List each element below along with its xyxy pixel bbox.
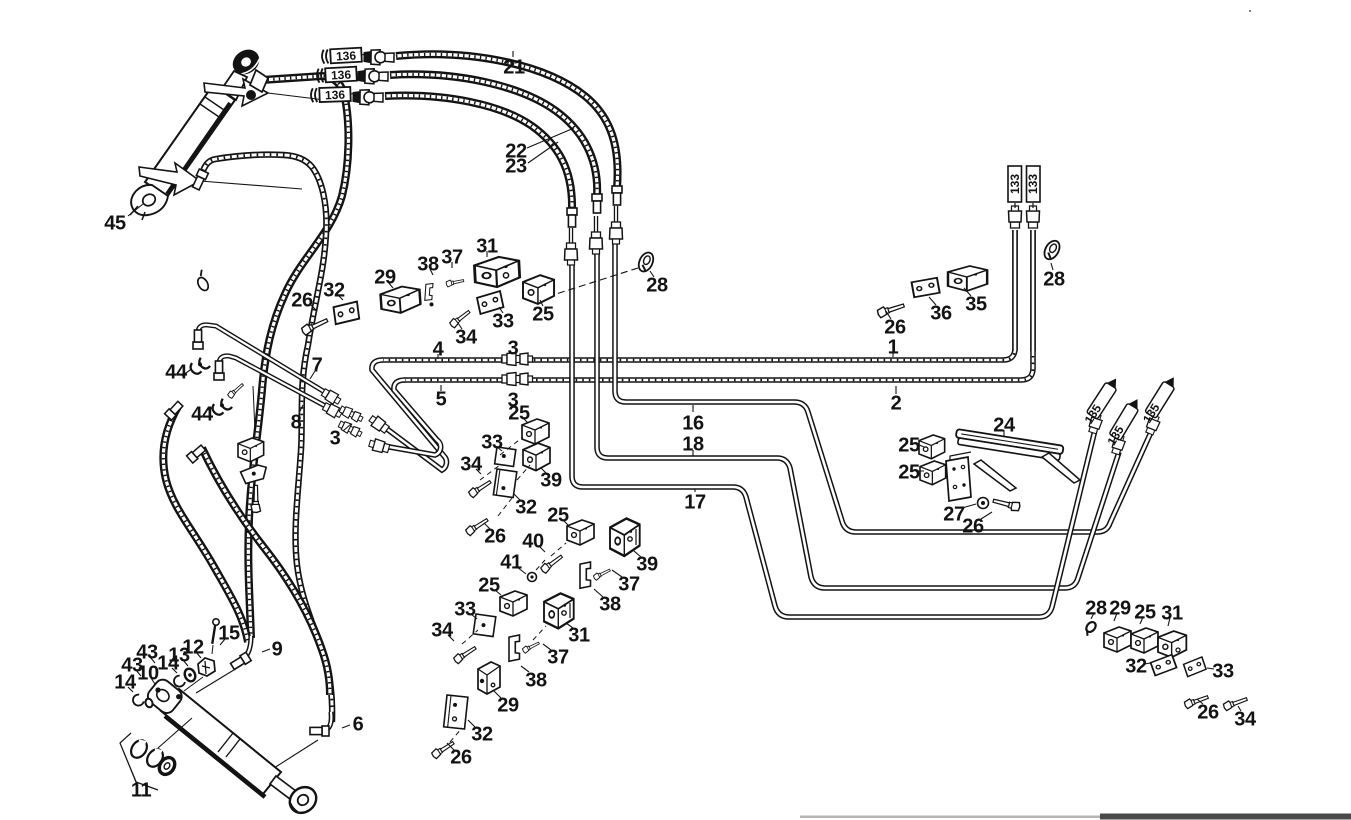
svg-text:34: 34 xyxy=(1234,709,1257,731)
svg-text:36: 36 xyxy=(930,303,952,325)
svg-text:44: 44 xyxy=(191,404,214,426)
svg-text:28: 28 xyxy=(1085,598,1107,620)
svg-text:9: 9 xyxy=(272,639,283,661)
svg-text:6: 6 xyxy=(353,714,364,736)
svg-text:21: 21 xyxy=(503,57,525,79)
svg-text:14: 14 xyxy=(157,653,180,675)
svg-text:5: 5 xyxy=(436,389,447,411)
svg-text:35: 35 xyxy=(965,294,987,316)
svg-text:34: 34 xyxy=(455,327,478,349)
svg-text:29: 29 xyxy=(374,267,396,289)
svg-text:41: 41 xyxy=(500,552,522,574)
svg-text:136: 136 xyxy=(331,67,352,82)
svg-text:26: 26 xyxy=(1197,702,1219,724)
svg-text:133: 133 xyxy=(1026,174,1040,194)
svg-text:3: 3 xyxy=(508,338,519,360)
svg-text:38: 38 xyxy=(525,670,547,692)
svg-text:2: 2 xyxy=(891,393,902,415)
svg-text:40: 40 xyxy=(522,531,544,553)
svg-text:15: 15 xyxy=(218,623,240,645)
svg-text:33: 33 xyxy=(492,311,514,333)
svg-text:44: 44 xyxy=(165,362,188,384)
svg-text:39: 39 xyxy=(540,470,562,492)
svg-text:3: 3 xyxy=(330,428,341,450)
svg-text:33: 33 xyxy=(454,599,476,621)
svg-text:136: 136 xyxy=(325,88,346,103)
svg-text:25: 25 xyxy=(478,575,500,597)
svg-text:45: 45 xyxy=(104,213,126,235)
svg-text:31: 31 xyxy=(1161,603,1183,625)
svg-text:24: 24 xyxy=(993,415,1016,437)
svg-text:17: 17 xyxy=(684,492,706,514)
svg-text:28: 28 xyxy=(646,275,668,297)
svg-text:4: 4 xyxy=(433,339,445,361)
svg-text:38: 38 xyxy=(417,254,439,276)
svg-text:31: 31 xyxy=(568,625,590,647)
svg-text:25: 25 xyxy=(898,435,920,457)
svg-text:26: 26 xyxy=(962,516,984,538)
svg-text:32: 32 xyxy=(515,497,537,519)
svg-text:26: 26 xyxy=(484,526,506,548)
svg-text:28: 28 xyxy=(1043,269,1065,291)
svg-text:25: 25 xyxy=(1134,602,1156,624)
svg-text:136: 136 xyxy=(336,48,357,63)
svg-text:26: 26 xyxy=(884,317,906,339)
svg-text:32: 32 xyxy=(1125,656,1147,678)
svg-text:11: 11 xyxy=(131,780,152,802)
svg-text:133: 133 xyxy=(1008,174,1022,194)
svg-text:8: 8 xyxy=(291,412,302,434)
svg-text:10: 10 xyxy=(137,663,159,685)
svg-text:14: 14 xyxy=(114,672,137,694)
svg-text:29: 29 xyxy=(1109,598,1131,620)
svg-text:25: 25 xyxy=(898,462,920,484)
svg-text:23: 23 xyxy=(505,156,527,178)
svg-text:16: 16 xyxy=(682,413,704,435)
svg-text:33: 33 xyxy=(1212,661,1234,683)
svg-text:33: 33 xyxy=(481,432,503,454)
svg-text:39: 39 xyxy=(636,554,658,576)
svg-text:25: 25 xyxy=(532,304,554,326)
svg-text:26: 26 xyxy=(291,290,313,312)
